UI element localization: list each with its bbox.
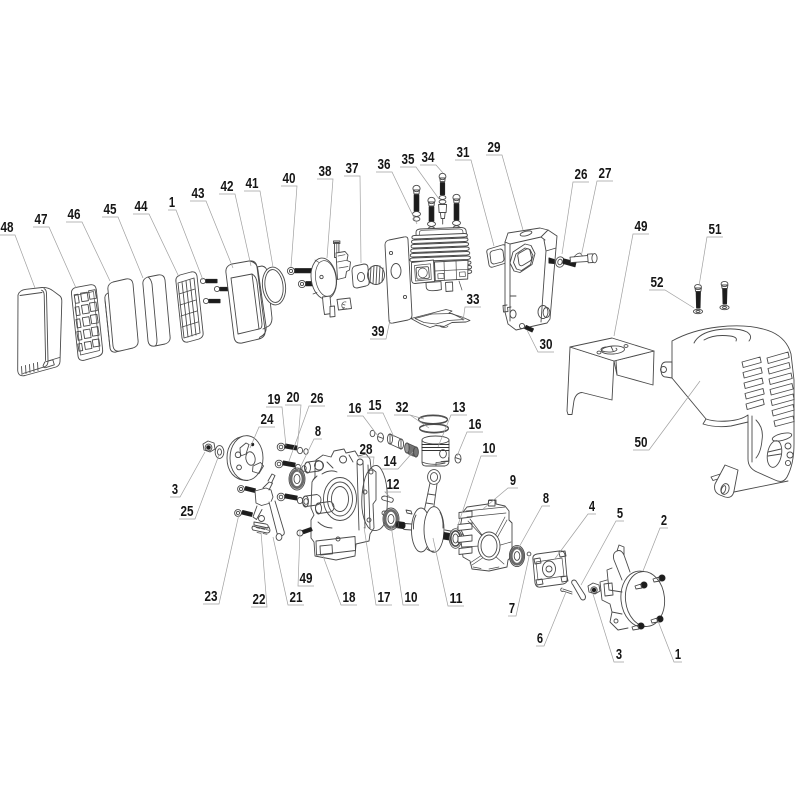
svg-text:34: 34 <box>422 150 435 166</box>
svg-text:30: 30 <box>540 337 553 353</box>
svg-text:8: 8 <box>543 491 549 507</box>
svg-text:27: 27 <box>599 166 612 182</box>
svg-text:52: 52 <box>651 275 664 291</box>
svg-text:32: 32 <box>396 400 409 416</box>
svg-text:17: 17 <box>378 590 391 606</box>
svg-text:11: 11 <box>450 591 463 607</box>
svg-text:33: 33 <box>467 292 480 308</box>
svg-text:9: 9 <box>510 473 516 489</box>
svg-text:19: 19 <box>268 392 281 408</box>
svg-text:22: 22 <box>253 592 266 608</box>
svg-text:36: 36 <box>378 157 391 173</box>
svg-text:10: 10 <box>483 441 496 457</box>
svg-text:48: 48 <box>1 220 14 236</box>
svg-text:42: 42 <box>221 179 234 195</box>
svg-text:13: 13 <box>453 400 466 416</box>
svg-text:1: 1 <box>169 195 175 211</box>
svg-text:8: 8 <box>315 424 321 440</box>
svg-text:16: 16 <box>469 417 482 433</box>
svg-text:18: 18 <box>343 590 356 606</box>
svg-text:23: 23 <box>205 589 218 605</box>
svg-text:29: 29 <box>488 140 501 156</box>
svg-text:28: 28 <box>360 442 373 458</box>
svg-text:39: 39 <box>372 324 385 340</box>
svg-text:44: 44 <box>135 199 148 215</box>
svg-text:4: 4 <box>589 499 595 515</box>
svg-text:3: 3 <box>616 647 622 663</box>
svg-text:15: 15 <box>369 398 382 414</box>
svg-text:49: 49 <box>635 219 648 235</box>
svg-text:35: 35 <box>402 152 415 168</box>
svg-text:6: 6 <box>537 631 543 647</box>
svg-text:26: 26 <box>575 167 588 183</box>
svg-text:7: 7 <box>509 601 515 617</box>
svg-text:50: 50 <box>635 435 648 451</box>
svg-text:47: 47 <box>35 212 48 228</box>
svg-text:43: 43 <box>192 186 205 202</box>
svg-text:25: 25 <box>181 504 194 520</box>
svg-text:46: 46 <box>68 207 81 223</box>
svg-text:5: 5 <box>617 506 623 522</box>
svg-text:24: 24 <box>261 412 274 428</box>
svg-text:51: 51 <box>709 222 722 238</box>
svg-text:45: 45 <box>104 202 117 218</box>
svg-text:2: 2 <box>661 513 667 529</box>
svg-text:20: 20 <box>287 390 300 406</box>
svg-text:12: 12 <box>387 477 400 493</box>
svg-text:21: 21 <box>290 590 303 606</box>
svg-text:3: 3 <box>172 482 178 498</box>
svg-text:40: 40 <box>283 171 296 187</box>
svg-text:38: 38 <box>319 164 332 180</box>
svg-text:1: 1 <box>675 647 681 663</box>
svg-text:49: 49 <box>300 571 313 587</box>
svg-text:10: 10 <box>405 590 418 606</box>
svg-text:37: 37 <box>346 161 359 177</box>
svg-text:26: 26 <box>311 391 324 407</box>
svg-text:31: 31 <box>457 145 470 161</box>
svg-text:14: 14 <box>384 454 397 470</box>
svg-text:16: 16 <box>349 401 362 417</box>
svg-text:41: 41 <box>246 176 259 192</box>
